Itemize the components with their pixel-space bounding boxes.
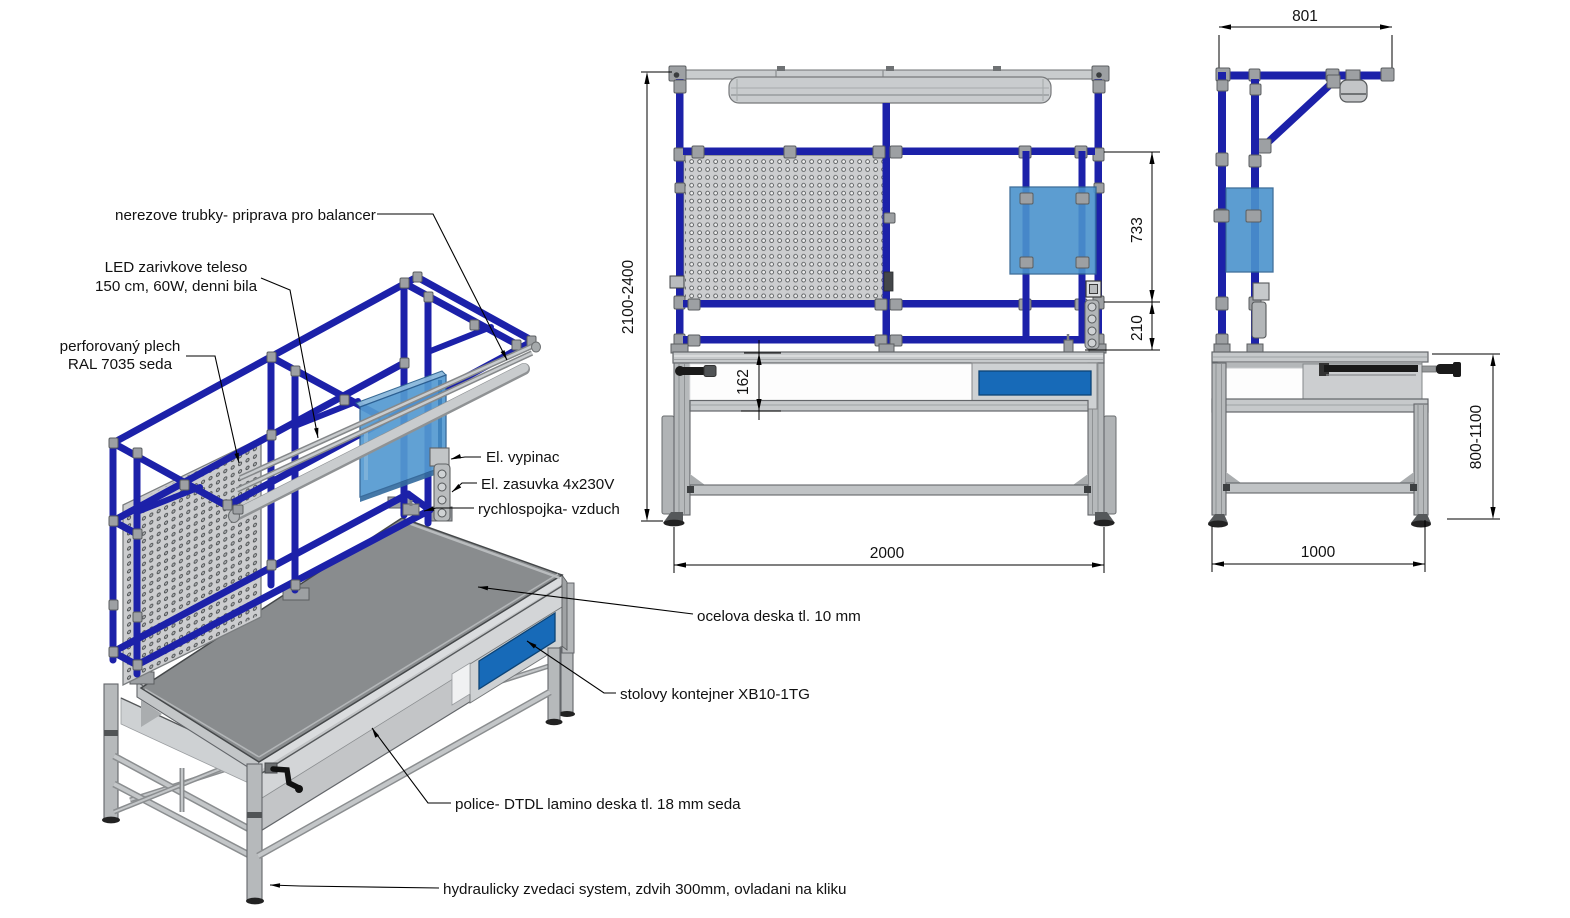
svg-text:hydraulicky zvedaci system, zd: hydraulicky zvedaci system, zdvih 300mm,… — [443, 881, 847, 898]
svg-text:El. zasuvka 4x230V: El. zasuvka 4x230V — [481, 476, 615, 493]
svg-text:stolovy kontejner XB10-1TG: stolovy kontejner XB10-1TG — [620, 686, 810, 703]
svg-text:210: 210 — [1129, 315, 1146, 341]
svg-text:2000: 2000 — [870, 545, 905, 562]
svg-text:801: 801 — [1292, 8, 1318, 25]
svg-text:perforovaný plech: perforovaný plech — [60, 338, 181, 355]
svg-text:rychlospojka- vzduch: rychlospojka- vzduch — [478, 501, 620, 518]
svg-text:ocelova deska tl. 10 mm: ocelova deska tl. 10 mm — [697, 608, 861, 625]
svg-text:2100-2400: 2100-2400 — [620, 260, 637, 335]
svg-text:162: 162 — [735, 369, 752, 395]
svg-text:LED zarivkove teleso: LED zarivkove teleso — [105, 259, 248, 276]
svg-text:733: 733 — [1129, 217, 1146, 243]
svg-text:RAL 7035 seda: RAL 7035 seda — [68, 356, 173, 373]
svg-text:El. vypinac: El. vypinac — [486, 449, 560, 466]
svg-text:1000: 1000 — [1301, 544, 1336, 561]
svg-text:800-1100: 800-1100 — [1468, 404, 1485, 469]
svg-text:150 cm, 60W, denni bila: 150 cm, 60W, denni bila — [95, 278, 258, 295]
svg-text:nerezove trubky- priprava pro: nerezove trubky- priprava pro balancer — [115, 207, 376, 224]
svg-text:police- DTDL lamino deska tl.: police- DTDL lamino deska tl. 18 mm seda — [455, 796, 741, 813]
